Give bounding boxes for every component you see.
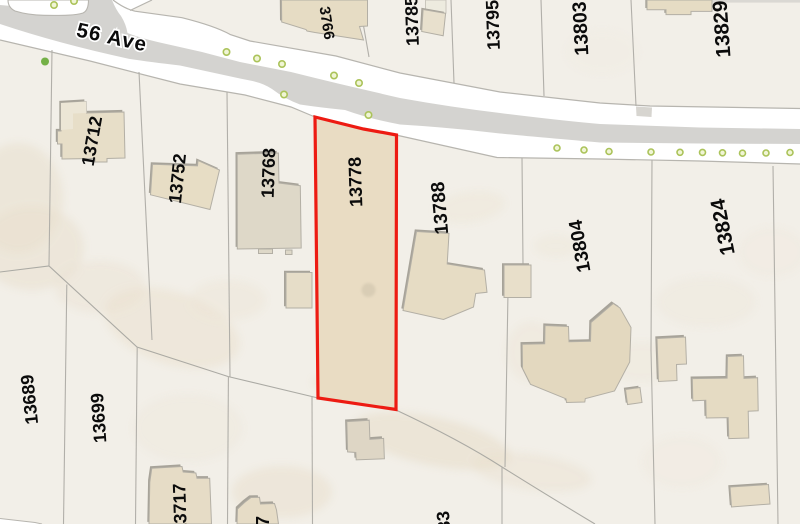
svg-text:13768: 13768	[258, 148, 280, 199]
svg-text:13717: 13717	[169, 483, 191, 524]
svg-text:13778: 13778	[345, 157, 367, 208]
svg-text:13727: 13727	[253, 516, 273, 524]
svg-text:13699: 13699	[87, 392, 110, 443]
svg-text:13829: 13829	[709, 0, 736, 58]
svg-text:13795: 13795	[482, 0, 504, 50]
svg-text:13803: 13803	[569, 1, 594, 56]
svg-text:13785: 13785	[401, 0, 423, 46]
